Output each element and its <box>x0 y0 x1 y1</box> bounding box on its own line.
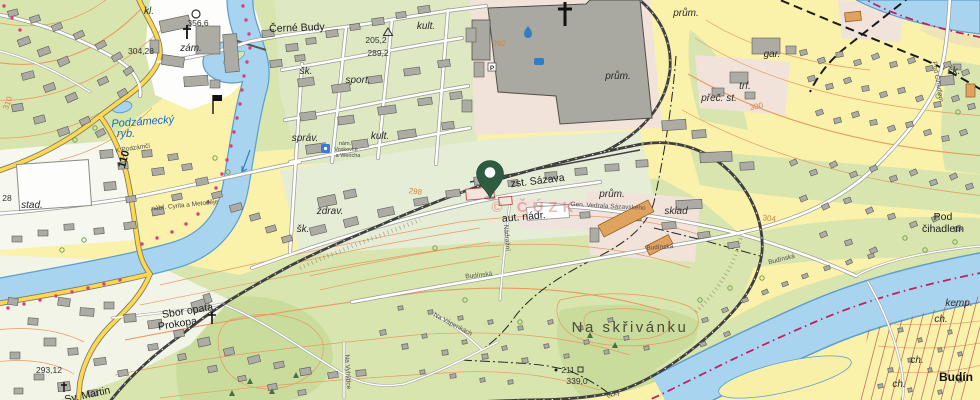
map-label: a Wericha <box>336 153 362 159</box>
parking-icon: P <box>488 63 496 72</box>
map-label: ryb. <box>117 128 135 140</box>
map-label: kl. <box>144 6 154 17</box>
map-label: sport. <box>345 75 370 86</box>
info-icon <box>321 144 330 153</box>
map-label: Budín <box>939 370 973 384</box>
map-label: 339,0 <box>566 376 588 386</box>
map-label: správ. <box>292 133 319 144</box>
map-label: čihadlem <box>922 223 964 235</box>
map-label: 289,2 <box>367 48 389 58</box>
map-label: kult. <box>417 21 435 32</box>
map-label: 292 <box>492 39 506 49</box>
map-label: gar. <box>764 49 781 60</box>
elevation-circle-icon <box>192 10 200 18</box>
map-label: kemp. <box>945 298 972 309</box>
map-label: ch. <box>892 379 905 390</box>
water-drop-icon <box>534 58 544 65</box>
map-label: 211 <box>561 365 575 375</box>
map-label: zám. <box>179 43 202 54</box>
map-label: šk. <box>948 66 961 77</box>
map-label: 304,28 <box>128 46 154 56</box>
map-label: prům. <box>672 7 699 19</box>
map-label: ch. <box>910 355 923 366</box>
svg-text:P: P <box>490 65 495 72</box>
map-label: 28 <box>2 193 12 203</box>
map-label: prům. <box>604 70 631 82</box>
map-label: stad. <box>21 200 43 211</box>
map-label: Na skřivánku <box>572 319 689 336</box>
map-label: přeč. st. <box>700 93 737 104</box>
map-label: ch. <box>934 314 947 325</box>
map-label: šk. <box>297 224 310 235</box>
map-label: 304 <box>762 213 777 223</box>
map-label: Černé Budy <box>269 20 326 35</box>
map-label: kult. <box>371 131 389 142</box>
map-label: šk. <box>300 66 313 77</box>
map-label: 293,12 <box>36 365 62 375</box>
map-label: zdrav. <box>316 206 344 217</box>
map-label: Pod <box>934 211 953 223</box>
provider-watermark: © ČÚZK <box>492 198 579 216</box>
map-label: 298 <box>408 186 423 197</box>
map-label: sklad <box>664 206 688 217</box>
map-label: trf. <box>739 81 751 92</box>
map-viewport[interactable]: P Černé Budykl.356,6zám.304,28205,2289,2… <box>0 0 980 400</box>
map-label: 356,6 <box>187 18 209 28</box>
map-label: 205,2 <box>365 35 387 45</box>
map-label: prům. <box>598 188 625 200</box>
